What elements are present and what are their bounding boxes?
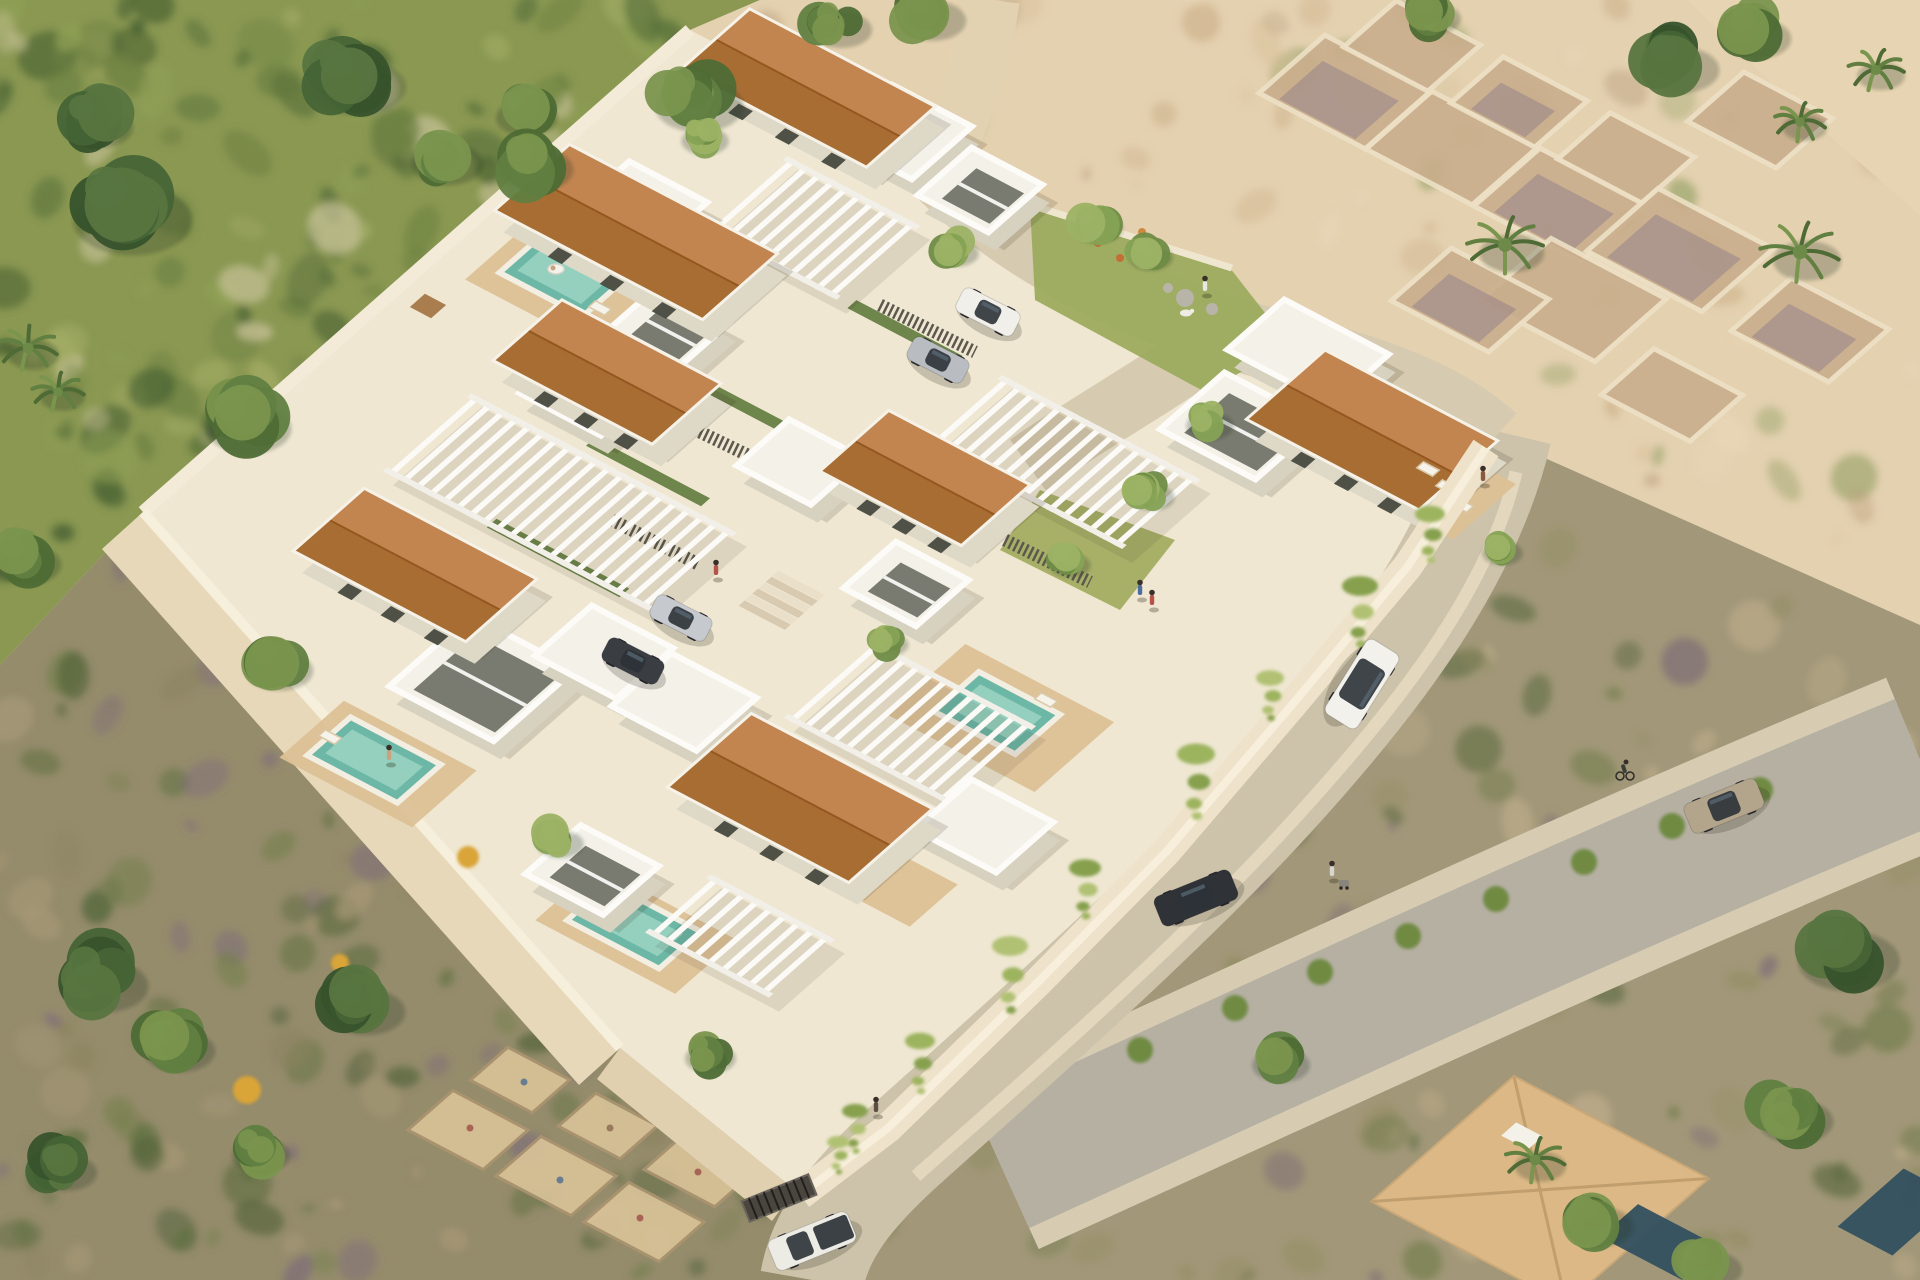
garden-rock [1206, 303, 1218, 315]
street-hedge-bush [1222, 995, 1248, 1021]
yellow-bush [233, 1076, 261, 1104]
garden-rock [1176, 289, 1194, 307]
pool-float [548, 264, 564, 274]
tree [1065, 203, 1123, 246]
flowering-plant [1116, 254, 1124, 262]
street-hedge-bush [1395, 923, 1421, 949]
street-hedge-bush [1483, 886, 1509, 912]
street-hedge-bush [1571, 849, 1597, 875]
garden-rock [1163, 283, 1173, 293]
site-plan-3d-render [0, 0, 1920, 1280]
street-hedge-bush [1307, 959, 1333, 985]
street-hedge-bush [1127, 1037, 1153, 1063]
yellow-bush [457, 846, 479, 868]
street-hedge-bush [1659, 813, 1685, 839]
render-viewport [0, 0, 1920, 1280]
